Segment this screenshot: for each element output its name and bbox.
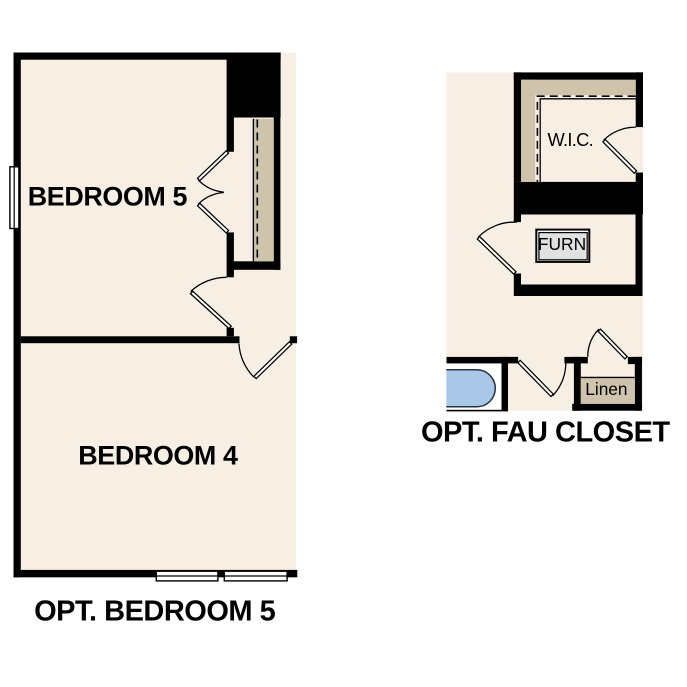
svg-text:BEDROOM 5: BEDROOM 5 [28,182,188,212]
svg-text:W.I.C.: W.I.C. [548,129,594,150]
svg-text:Linen: Linen [585,379,627,399]
svg-text:OPT. FAU CLOSET: OPT. FAU CLOSET [421,417,670,449]
svg-text:BEDROOM 4: BEDROOM 4 [78,441,238,471]
svg-text:OPT. BEDROOM 5: OPT. BEDROOM 5 [34,596,276,628]
svg-text:FURN: FURN [538,234,586,254]
